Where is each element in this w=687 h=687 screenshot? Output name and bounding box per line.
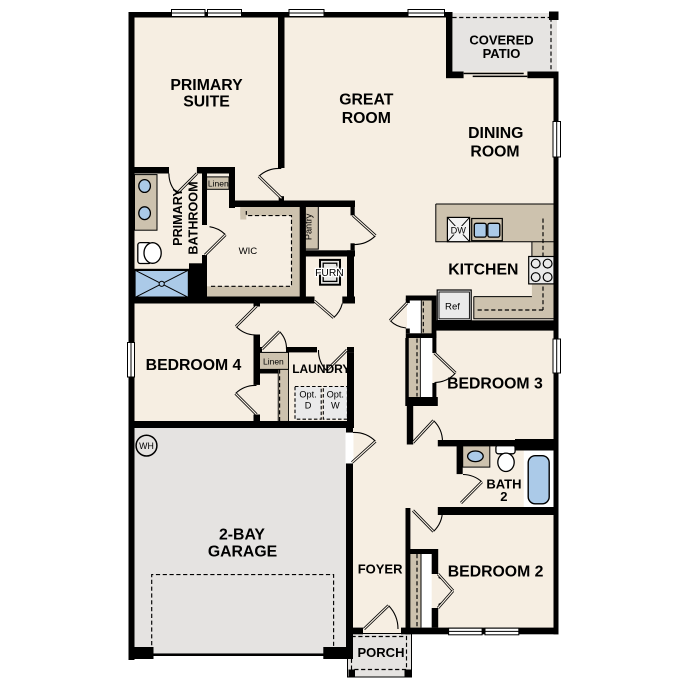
svg-text:Opt.: Opt. xyxy=(327,389,344,399)
svg-text:BATHROOM: BATHROOM xyxy=(187,181,201,254)
svg-text:DW: DW xyxy=(451,226,467,236)
svg-text:SUITE: SUITE xyxy=(183,93,230,110)
svg-text:W: W xyxy=(331,400,340,410)
svg-text:2: 2 xyxy=(500,489,507,504)
svg-text:2-BAY: 2-BAY xyxy=(219,526,265,543)
svg-text:Linen: Linen xyxy=(208,178,229,188)
svg-text:KITCHEN: KITCHEN xyxy=(448,261,518,278)
svg-text:GREAT: GREAT xyxy=(339,92,393,109)
svg-text:Opt.: Opt. xyxy=(299,389,316,399)
svg-text:BEDROOM 3: BEDROOM 3 xyxy=(447,376,543,393)
svg-text:Linen: Linen xyxy=(263,357,284,367)
svg-text:LAUNDRY: LAUNDRY xyxy=(292,362,350,376)
svg-text:PRIMARY: PRIMARY xyxy=(170,77,243,94)
svg-text:PATIO: PATIO xyxy=(483,46,521,61)
svg-text:PORCH: PORCH xyxy=(358,645,405,660)
svg-text:FURN: FURN xyxy=(315,268,344,279)
svg-text:BEDROOM 2: BEDROOM 2 xyxy=(448,564,544,581)
svg-text:ROOM: ROOM xyxy=(342,110,391,127)
svg-text:DINING: DINING xyxy=(468,125,523,142)
svg-text:WIC: WIC xyxy=(239,246,258,257)
svg-text:FOYER: FOYER xyxy=(358,562,403,577)
svg-text:PRIMARY: PRIMARY xyxy=(171,188,185,246)
svg-text:ROOM: ROOM xyxy=(470,143,519,160)
svg-text:GARAGE: GARAGE xyxy=(208,543,277,560)
svg-text:WH: WH xyxy=(139,441,154,451)
svg-text:BEDROOM 4: BEDROOM 4 xyxy=(146,357,242,374)
svg-text:D: D xyxy=(305,400,312,410)
svg-text:Pantry: Pantry xyxy=(304,213,314,240)
svg-text:Ref: Ref xyxy=(445,302,460,313)
